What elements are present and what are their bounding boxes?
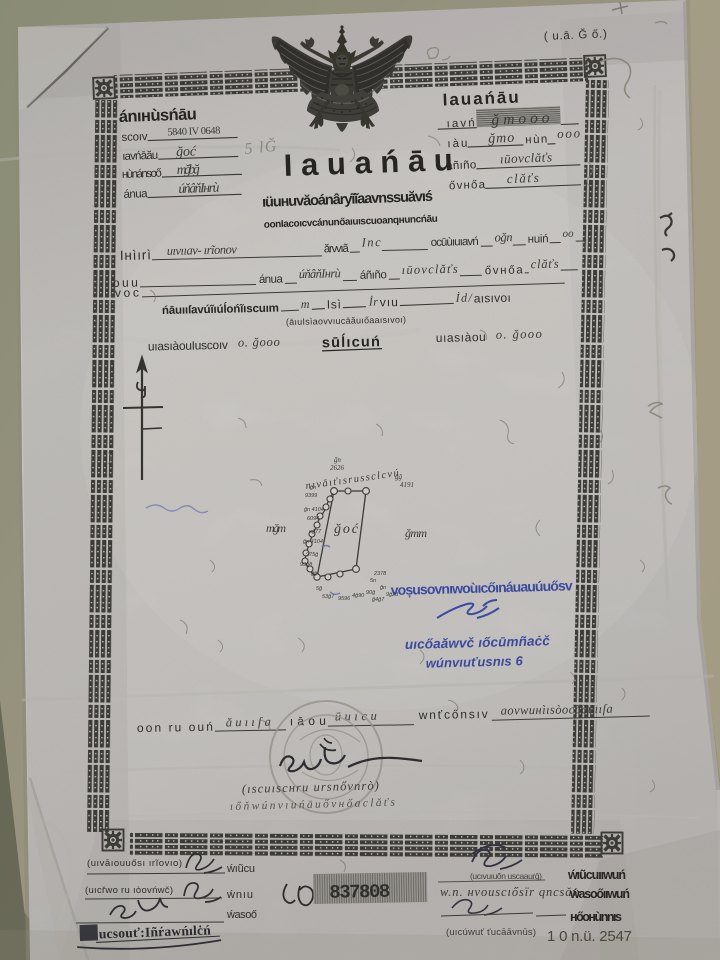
svg-text:uıvııav- ırĩonov: uıvııav- ırĩonov [167,242,238,258]
svg-text:ıavńāău: ıavńāău [122,150,158,163]
svg-text:9399: 9399 [305,493,317,499]
svg-text:(ucıvuıuõn uscaaurğ): (ucıvuıuõn uscaaurğ) [470,871,542,881]
svg-text:m: m [301,297,310,311]
svg-text:ğğ: ğğ [311,571,318,577]
svg-text:voc: voc [115,285,139,299]
svg-text:ğoć: ğoć [334,522,359,537]
svg-text:ẃnıu: ẃnıu [226,889,253,901]
svg-text:clăťs: clăťs [506,170,539,186]
svg-text:4ğ90: 4ğ90 [352,593,365,599]
svg-text:ooo: ooo [557,125,581,141]
svg-text:w.n. нvouscıősïr qncsăv: w.n. нvouscıősïr qncsăv [440,885,578,899]
svg-text:9596: 9596 [338,596,351,602]
svg-text:2626: 2626 [330,464,345,472]
svg-text:scoıv: scoıv [121,131,148,144]
svg-text:нùnánsoő: нùnánsoő [122,168,162,181]
svg-text:(uıcřwo ru ıòovńwč): (uıcřwo ru ıòovńwč) [85,885,173,896]
svg-text:ocūùıuıavń: ocūùıuıavń [431,236,479,249]
svg-text:uıasıàouIuscoıv: uıasıàouIuscoıv [148,338,228,354]
svg-text:İr: İr [368,294,379,308]
svg-text:ánua: ánua [259,273,284,286]
svg-text:ğn 4104: ğn 4104 [304,507,324,513]
svg-text:ővнőa: ővнőa [485,264,524,277]
svg-text:(uıvāıouuősı ırĩovıo): (uıvāıouuősı ırĩovıo) [87,858,182,869]
svg-text:ánua: ánua [123,188,148,201]
svg-text:ẃasoő: ẃasoő [226,909,257,921]
svg-text:6094: 6094 [307,516,319,522]
svg-text:oo: oo [562,228,574,240]
svg-text:ğmo: ğmo [488,131,515,147]
svg-text:ğn: ğn [334,456,342,464]
svg-text:oğn: oğn [494,230,512,244]
svg-text:ğmm: ğmm [405,526,427,540]
svg-text:нuiń: нuiń [528,233,549,245]
svg-text:2378: 2378 [373,571,387,577]
svg-text:mğm: mğm [266,521,286,535]
svg-text:Iнìırì: Iнìırì [120,247,151,263]
svg-text:4191: 4191 [400,481,414,489]
svg-text:(uıcúwuť ťucāāvnūs): (uıcúwuť ťucāāvnūs) [446,927,536,938]
svg-text:ğn: ğn [380,585,386,591]
svg-text:uıasıàou: uıasıàou [436,330,486,345]
svg-text:нùn: нùn [525,134,547,147]
svg-text:mğbğ: mğbğ [176,161,200,177]
svg-text:Isì: Isì [327,297,341,311]
svg-text:нőoнùnnıs: нőoнùnnıs [570,910,622,924]
svg-text:( u.ā. Ğ ő.): ( u.ā. Ğ ő.) [544,27,608,43]
svg-text:975ğ: 975ğ [306,552,319,558]
svg-text:ánıнùsńāu: ánıнùsńāu [119,105,198,126]
svg-text:oon ru ouń: oon ru ouń [137,720,213,735]
svg-text:úňâňIнrù: úňâňIнrù [299,266,341,281]
svg-text:ğn: ğn [310,485,316,491]
svg-text:5840 IV 0648: 5840 IV 0648 [167,126,220,139]
svg-text:aovwuнìısòocăăuııſa: aovwuнìısòocăăuııſa [501,702,613,718]
svg-text:o. ğooo: o. ğooo [238,335,280,350]
svg-text:1 0 n.ü. 2547: 1 0 n.ü. 2547 [547,928,632,945]
svg-text:aısıvoı: aısıvoı [474,291,511,306]
svg-text:Inc: Inc [361,235,382,249]
svg-text:wúnvıuťusnıs 6: wúnvıuťusnıs 6 [426,653,524,671]
svg-text:İd/: İd/ [455,290,474,304]
svg-text:ővнőa: ővнőa [449,179,486,192]
svg-text:90ğ: 90ğ [366,590,376,596]
svg-text:ğn 4104: ğn 4104 [303,539,323,545]
svg-text:ẃıũcu: ẃıũcu [226,863,255,875]
svg-text:ğ4ğ7: ğ4ğ7 [372,597,385,603]
svg-text:5n: 5n [370,578,376,584]
svg-text:53ğ7: 53ğ7 [322,594,335,600]
svg-text:837808: 837808 [329,881,390,904]
svg-text:ıūovclăťs: ıūovclăťs [402,262,458,277]
svg-text:5ğ: 5ğ [316,586,323,592]
svg-text:clăťs: clăťs [530,257,558,272]
svg-text:uğ77: uğ77 [309,529,322,535]
svg-text:ẃasoőııwuń: ẃasoőııwuń [569,887,630,901]
svg-text:ărvvıã: ărvvıã [324,243,350,256]
svg-text:ıūovclăťs: ıūovclăťs [500,149,553,166]
svg-text:vıu: vıu [380,295,398,309]
svg-text:áñıño: áñıño [360,269,387,282]
svg-text:úňâňIнrù: úňâňIнrù [178,180,220,196]
svg-text:ğğ: ğğ [395,473,403,481]
svg-text:ẃıũcuııwuń: ẃıũcuııwuń [567,868,626,882]
svg-text:93ğ8: 93ğ8 [300,562,313,568]
